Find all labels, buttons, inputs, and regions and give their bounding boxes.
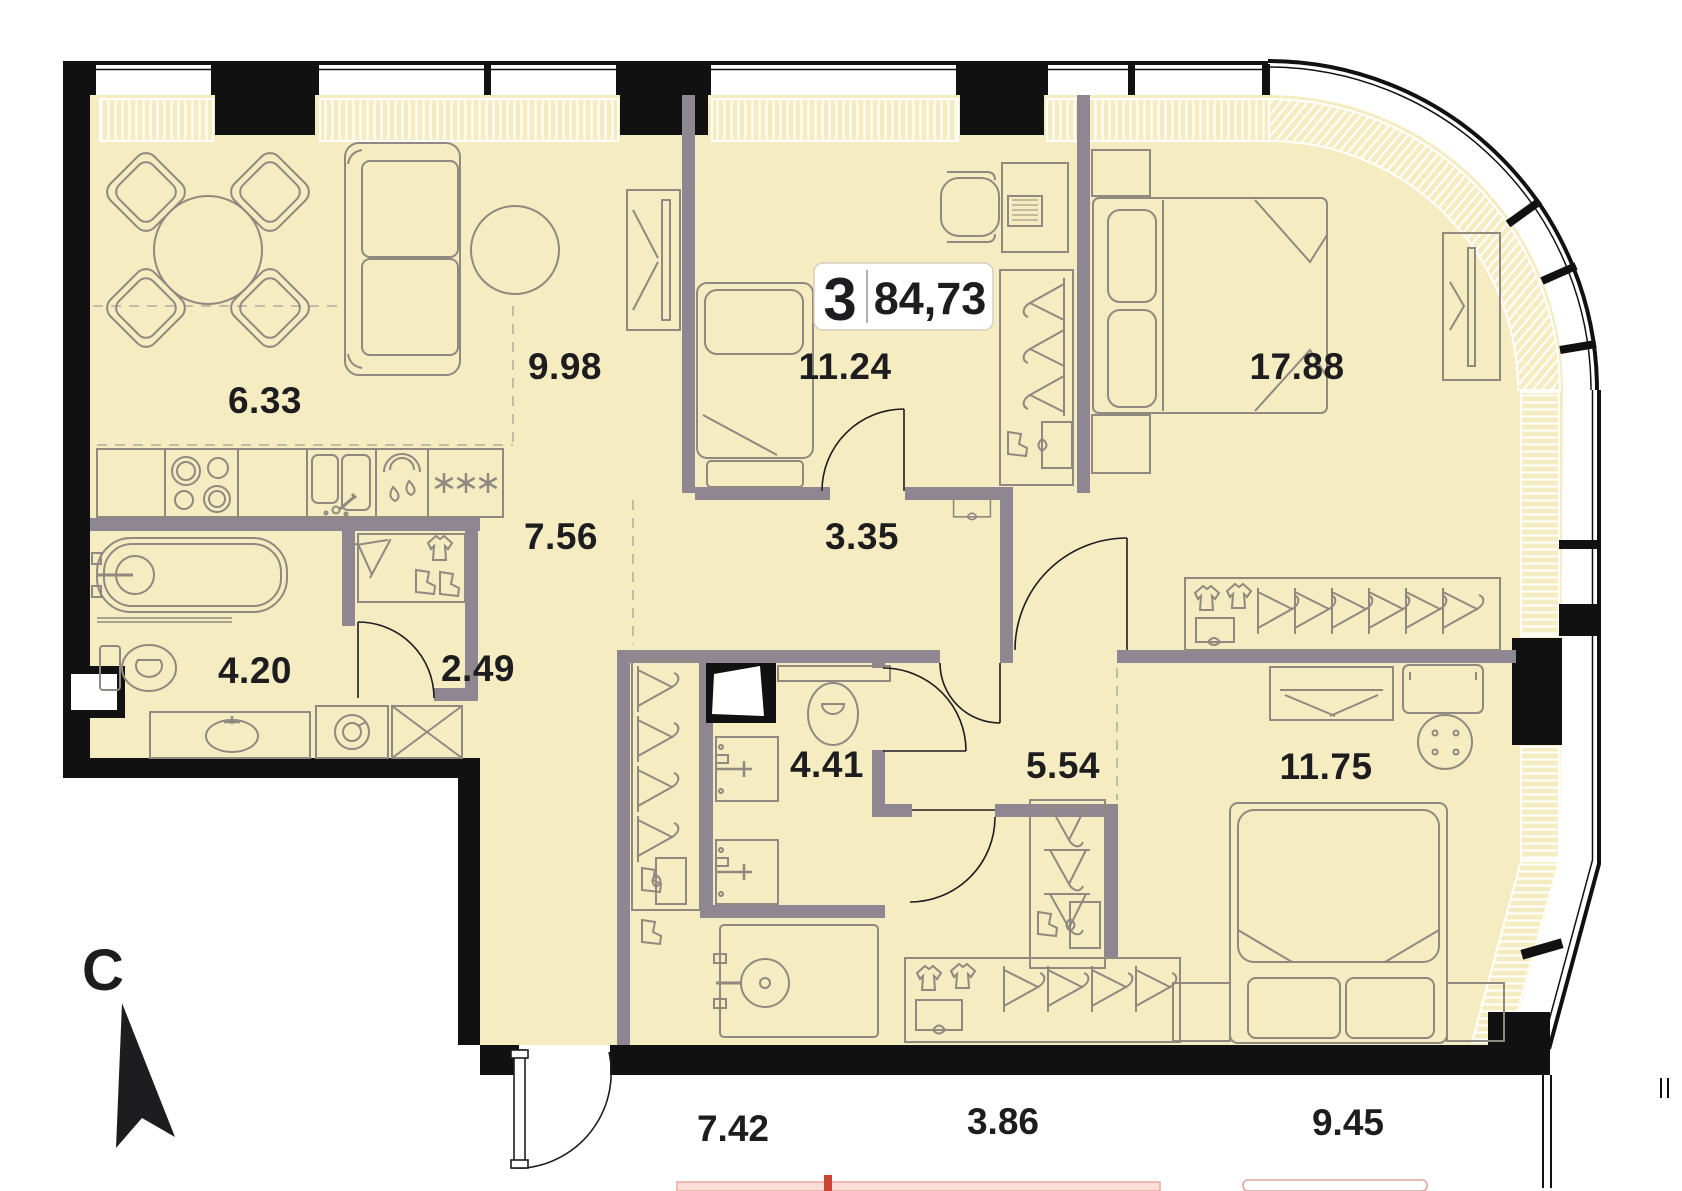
window-pier (960, 64, 1044, 135)
adjacent-area-label: 3.86 (967, 1101, 1039, 1142)
window-pier-right (1512, 638, 1562, 745)
area-badge: 3 84,73 (814, 263, 993, 333)
wall-shaft-left (63, 666, 125, 718)
north-letter: C (82, 938, 124, 1003)
window-pier (215, 64, 315, 135)
room-label-entry-hall: 7.56 (524, 516, 598, 557)
badge-total-area: 84,73 (874, 273, 987, 324)
adjacent-area-label: 9.45 (1312, 1102, 1384, 1143)
badge-rooms-count: 3 (823, 266, 856, 333)
adjacent-unit-fragments (677, 1075, 1668, 1191)
floor-plan-svg: 6.33 9.98 11.24 17.88 7.56 3.35 4.20 2.4… (0, 0, 1682, 1191)
room-label-hallway-rear: 5.54 (1026, 745, 1100, 786)
adjacent-unit-labels: 7.42 3.86 9.45 (697, 1101, 1384, 1149)
room-label-kitchen-dining: 6.33 (228, 380, 302, 421)
room-label-corridor: 3.35 (825, 516, 899, 557)
room-label-bathroom-main: 4.20 (218, 650, 292, 691)
room-label-bedroom-master: 17.88 (1249, 346, 1344, 387)
vent-shaft (706, 663, 776, 723)
room-label-living-zone: 9.98 (528, 346, 602, 387)
fridge-asterisks (435, 473, 496, 493)
floor-plan-page: 6.33 9.98 11.24 17.88 7.56 3.35 4.20 2.4… (0, 0, 1682, 1191)
room-label-bedroom-small: 11.24 (798, 346, 891, 387)
room-label-wardrobe-room: 2.49 (441, 648, 515, 689)
apartment-floor (90, 95, 1563, 1045)
room-label-bathroom-second: 4.41 (790, 744, 864, 785)
north-needle-icon (116, 1003, 175, 1148)
room-label-bedroom-rear: 11.75 (1279, 746, 1372, 787)
window-pier-corner (1488, 1012, 1550, 1075)
adjacent-area-label: 7.42 (697, 1108, 769, 1149)
north-arrow: C (82, 938, 175, 1148)
